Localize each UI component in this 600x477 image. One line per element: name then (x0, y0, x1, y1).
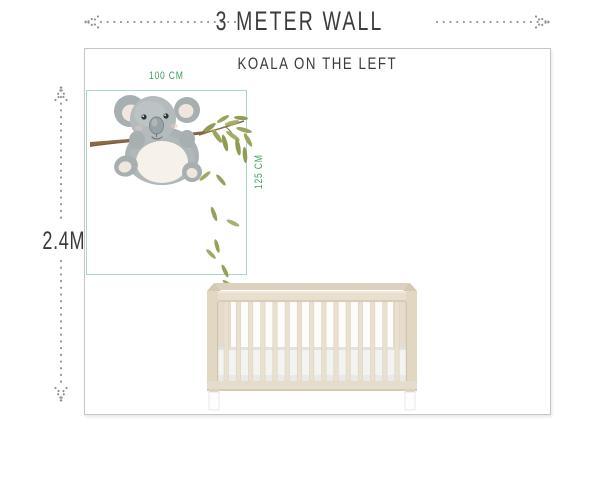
crib-illustration (207, 283, 417, 411)
decal-width-label-text: 100 CM (149, 70, 184, 82)
wall-height-label-text: 2.4M (42, 227, 85, 256)
eucalyptus-leaves-icon (199, 114, 254, 163)
koala-decal-illustration (86, 90, 247, 275)
mockup-canvas: 3 METER WALL KOALA ON THE LEFT 2.4M (0, 0, 600, 477)
down-arrow-icon (52, 258, 70, 404)
decal-height-label: 125 CM (252, 142, 266, 202)
decal-height-label-text: 125 CM (252, 155, 266, 190)
crib-foot (209, 392, 219, 410)
up-arrow-icon (52, 84, 70, 224)
crib-foot (405, 392, 415, 410)
right-arrow-icon (434, 13, 554, 31)
decal-width-label: 100 CM (86, 70, 247, 86)
wall-width-title-text: 3 METER WALL (216, 6, 384, 37)
placement-heading-text: KOALA ON THE LEFT (238, 54, 398, 74)
falling-leaves-icon (198, 170, 240, 289)
wall-height-label: 2.4M (34, 227, 90, 255)
